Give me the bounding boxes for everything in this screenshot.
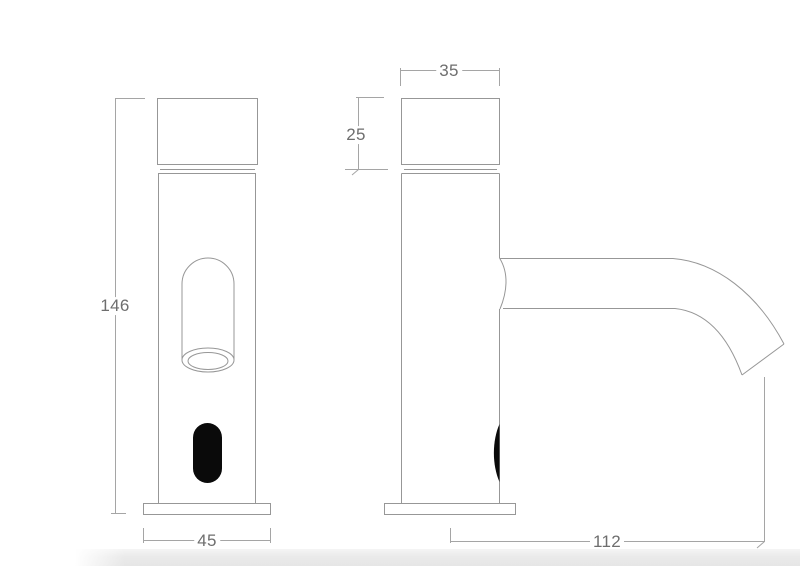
dim-label-base-width: 45 [194,532,220,550]
side-spout-bottom-curve [503,309,742,376]
front-nozzle-outline [182,258,234,360]
side-spout-top-curve [500,259,785,345]
dim-label-height: 146 [97,297,132,315]
front-nozzle-outer-rim [182,348,234,372]
side-spout-root-curve [500,258,507,309]
side-spout-tip-face [742,344,784,375]
front-sensor-window [193,423,222,483]
floor-shadow-band [75,549,800,566]
front-cap [158,99,258,165]
side-cap [402,99,500,165]
dim-label-cap-height: 25 [343,126,369,144]
side-view [385,99,785,515]
front-nozzle-inner-rim [188,353,228,370]
front-base-plate [144,504,271,515]
dim-label-cap-width: 35 [436,62,462,80]
front-view [144,99,271,515]
faucet-technical-drawing: 146 45 35 25 112 [0,0,800,566]
drawing-canvas [0,0,800,566]
side-sensor-window [494,424,500,482]
side-base-plate [385,504,516,515]
